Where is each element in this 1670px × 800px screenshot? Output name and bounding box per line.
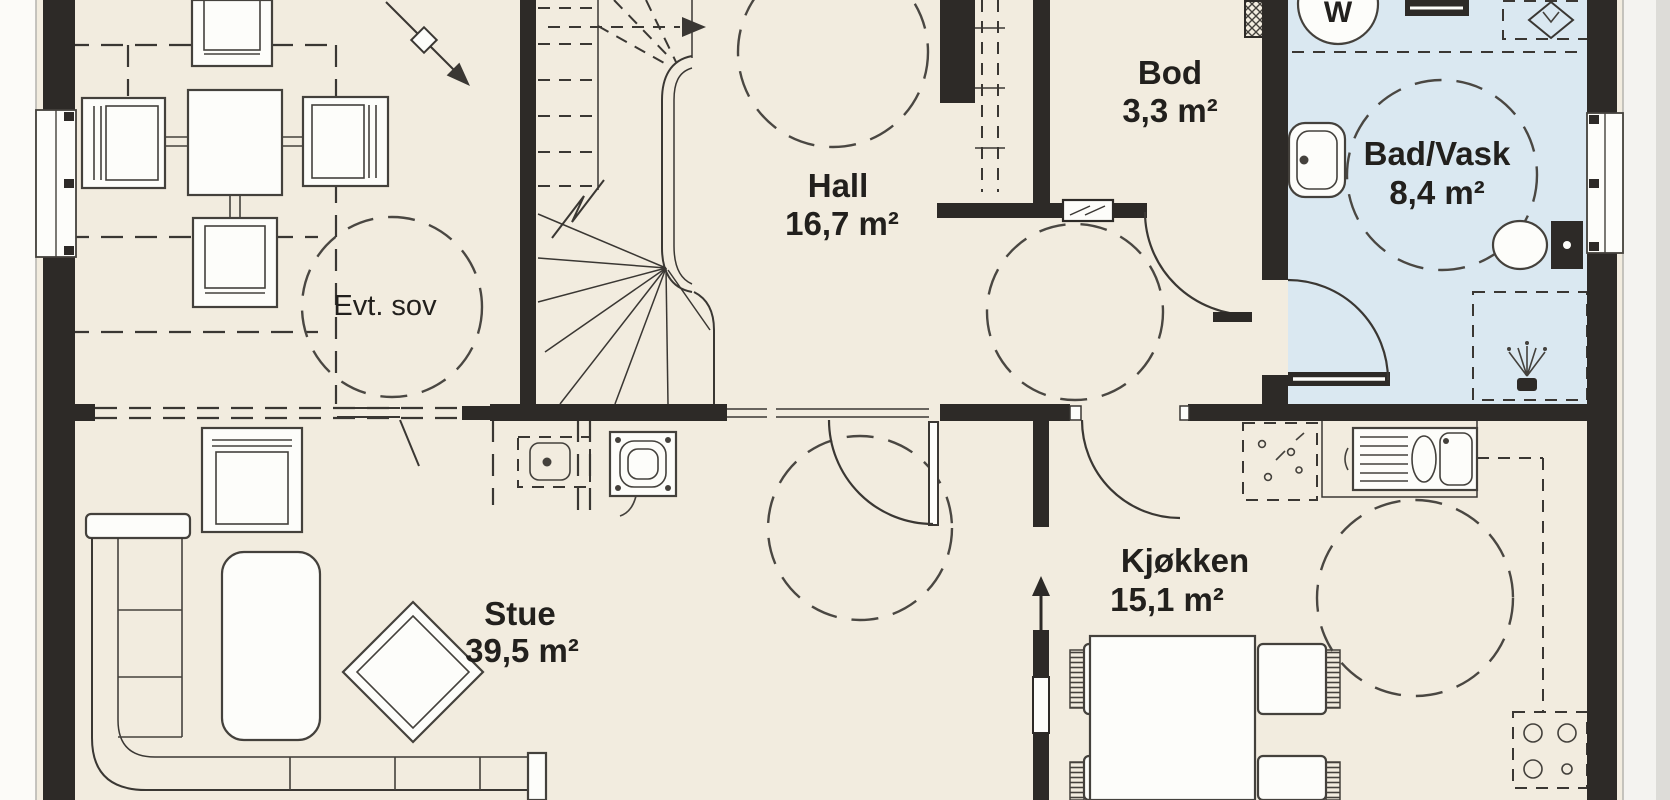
vent-icon [1063,200,1113,221]
kitchen-sink-icon [1345,428,1477,490]
side-table [188,90,282,195]
sofa-armrest [528,753,546,800]
room-label-evt-sov: Evt. sov [333,290,437,322]
armchair [202,428,302,532]
sink-icon [1289,123,1345,197]
room-label-hall: Hall [808,167,869,204]
room-area-bod: 3,3 m² [1122,92,1217,129]
room-area-stue: 39,5 m² [465,632,579,669]
room-area-bad-vask: 8,4 m² [1389,174,1484,211]
room-label-stue: Stue [484,595,556,632]
room-area-hall: 16,7 m² [785,205,899,242]
window [1587,113,1623,253]
chair [303,97,388,186]
dining-chair [1258,756,1340,800]
room-label-kjokken: Kjøkken [1121,542,1249,579]
sofa-armrest [86,514,190,538]
toilet-icon [1493,221,1583,269]
washing-machine-label: W [1324,0,1353,29]
chair [192,0,272,66]
room-label-bod: Bod [1138,54,1202,91]
floor-plan: W [0,0,1670,800]
room-label-bad-vask: Bad/Vask [1364,135,1511,172]
window [36,110,76,257]
left-margin [0,0,36,800]
chair [82,98,165,188]
chaise-longue [222,552,320,740]
dining-chair [1258,644,1340,714]
right-edge-shadow [1656,0,1670,800]
room-area-kjokken: 15,1 m² [1110,581,1224,618]
chair [193,218,277,307]
dining-table [1090,636,1255,800]
bathroom-counter [1405,0,1469,16]
